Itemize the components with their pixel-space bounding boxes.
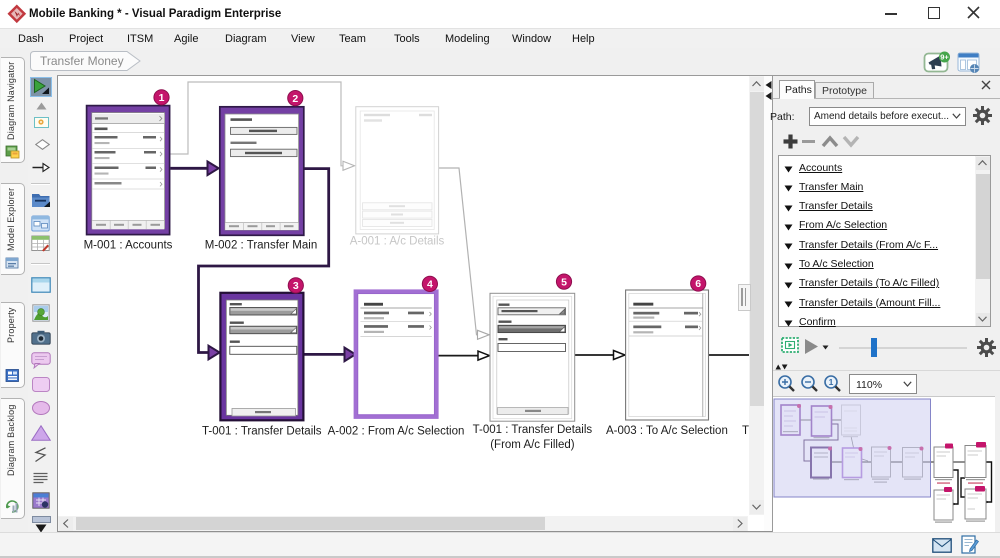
svg-text:1: 1 (829, 377, 834, 387)
svg-text:M-001 : Accounts: M-001 : Accounts (84, 240, 173, 252)
svg-text:T-001 : Transfer Details: T-001 : Transfer Details (202, 426, 322, 438)
svg-text:9+: 9+ (940, 53, 949, 62)
svg-text:T: T (742, 425, 749, 437)
svg-text:A-002 : From A/c Selection: A-002 : From A/c Selection (328, 426, 465, 438)
svg-text:T-001 : Transfer Details: T-001 : Transfer Details (473, 424, 593, 436)
svg-text:M-002 : Transfer Main: M-002 : Transfer Main (205, 240, 317, 252)
svg-text:3: 3 (293, 280, 299, 292)
svg-text:4: 4 (427, 279, 433, 291)
svg-text:2: 2 (292, 93, 298, 105)
svg-text:A-001 : A/c Details: A-001 : A/c Details (350, 235, 445, 247)
svg-text:6: 6 (695, 278, 701, 290)
svg-text:A-003 : To A/c Selection: A-003 : To A/c Selection (606, 425, 728, 437)
svg-text:(From A/c Filled): (From A/c Filled) (490, 439, 575, 451)
svg-text:1: 1 (159, 92, 165, 104)
svg-text:5: 5 (561, 276, 567, 288)
